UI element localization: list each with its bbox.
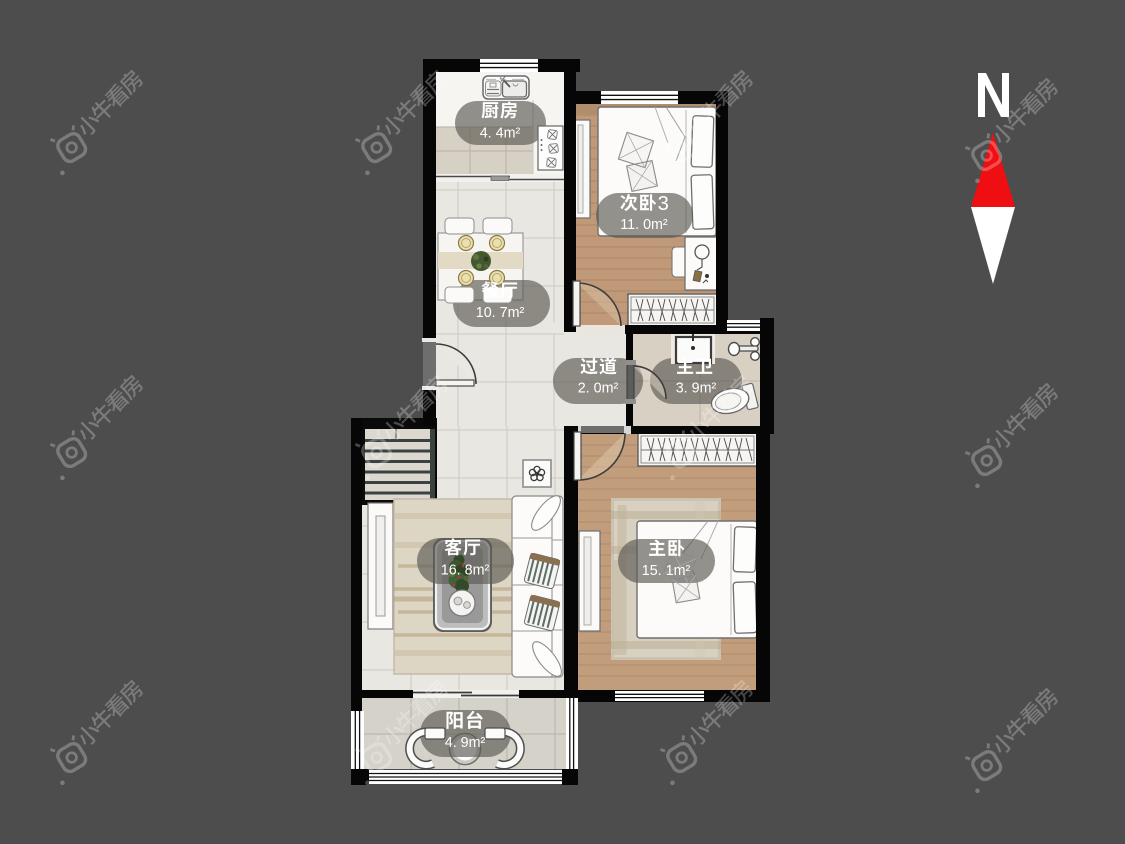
svg-text:4. 4m²: 4. 4m² <box>480 126 521 142</box>
svg-text:11. 0m²: 11. 0m² <box>620 217 668 233</box>
svg-text:16. 8m²: 16. 8m² <box>441 563 490 579</box>
svg-text:3: 3 <box>658 193 669 215</box>
svg-text:4. 9m²: 4. 9m² <box>445 735 486 751</box>
svg-text:10. 7m²: 10. 7m² <box>476 305 525 321</box>
svg-text:2. 0m²: 2. 0m² <box>578 381 619 397</box>
svg-text:15. 1m²: 15. 1m² <box>642 563 691 579</box>
svg-text:3. 9m²: 3. 9m² <box>676 381 717 397</box>
